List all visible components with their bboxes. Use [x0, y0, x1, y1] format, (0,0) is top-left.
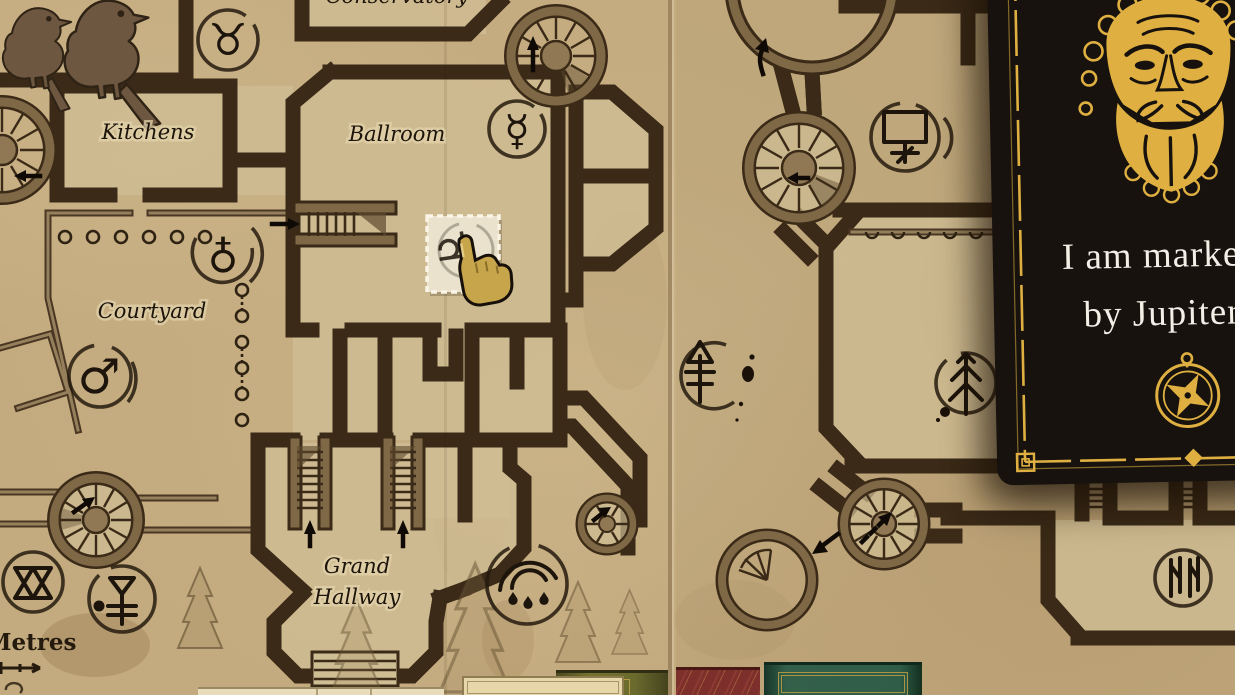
- double-triangle-symbol[interactable]: [3, 552, 63, 612]
- grand-hallway-label: Hallway: [313, 585, 402, 609]
- spiral-stair-southeast: [844, 484, 924, 564]
- shelf-tan-card[interactable]: [462, 676, 624, 695]
- courtyard-walls: [0, 213, 290, 530]
- courtyard-label: Courtyard: [98, 299, 207, 323]
- kitchens-label: Kitchens: [101, 120, 195, 144]
- shelf-maroon-book[interactable]: [676, 667, 760, 695]
- mars-symbol[interactable]: ♂: [69, 345, 136, 407]
- shelf-papers[interactable]: [198, 687, 444, 695]
- spiral-stair-northwest: [0, 102, 50, 198]
- mercury-glyph: ☿: [504, 106, 530, 155]
- spiral-stair-southwest: [54, 478, 138, 562]
- conservatory-label: Conservatory: [326, 0, 470, 8]
- shelf-green-book[interactable]: [764, 662, 922, 695]
- taurus-symbol[interactable]: ♉: [198, 10, 258, 70]
- grand-hallway-label: Grand: [324, 554, 390, 578]
- spiral-stair-ballroom: [511, 11, 601, 101]
- spiral-stair-hallway-east: [581, 498, 633, 550]
- taurus-glyph: ♉: [208, 15, 247, 66]
- jupiter-face-icon: [1077, 0, 1235, 204]
- compass-icon: [1154, 353, 1220, 429]
- sulfur-rune-symbol[interactable]: [89, 566, 155, 632]
- book-ornament: [778, 672, 908, 695]
- mars-glyph: ♂: [77, 349, 120, 405]
- clue-card[interactable]: I am marked by Jupiter: [986, 0, 1235, 485]
- raven-icon: [3, 8, 71, 111]
- antimony-symbol[interactable]: ♁: [192, 228, 262, 282]
- scale-label: Metres: [0, 629, 76, 656]
- crescent-drops-symbol[interactable]: [487, 544, 567, 624]
- scale-bar: [0, 662, 40, 674]
- ballroom-label: Ballroom: [348, 122, 446, 146]
- clue-text-line2: by Jupiter: [994, 288, 1235, 338]
- clue-text-line1: I am marked: [992, 230, 1235, 280]
- manor-map-screen: ♉ ☿ ♁ ♂: [0, 0, 1235, 695]
- antimony-glyph: ♁: [208, 233, 239, 282]
- spiral-stair-east: [749, 118, 849, 218]
